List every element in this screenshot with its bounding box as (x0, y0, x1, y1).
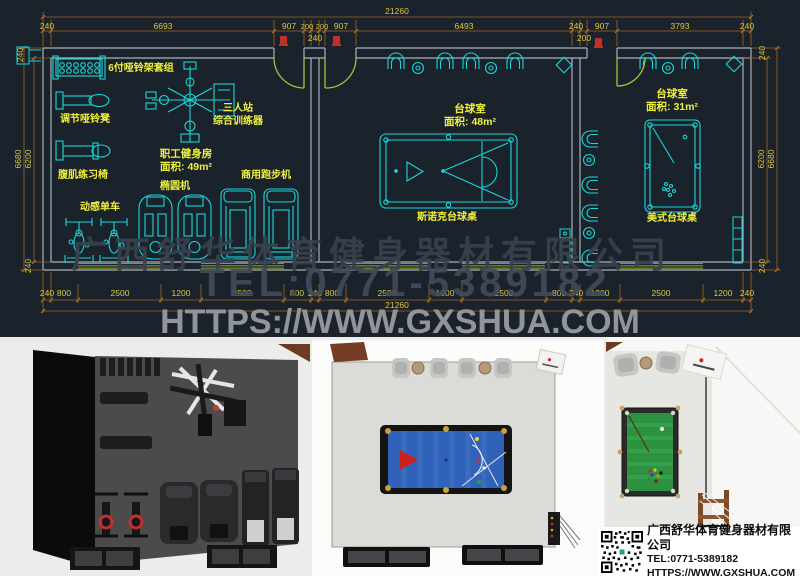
plan-text: 商用跑步机 (241, 168, 291, 181)
plan-text: 2500 (378, 288, 397, 298)
plan-text: 907 (334, 21, 348, 31)
plan-text: 椭圆机 (160, 179, 190, 192)
snooker-table-3d (380, 425, 512, 494)
pool-table-3d (618, 406, 683, 499)
plan-text: 面积: 48m² (444, 115, 496, 128)
plan-text: 1200 (172, 288, 191, 298)
plan-text: 美式台球桌 (647, 211, 697, 224)
plan-text: 240 (757, 46, 767, 60)
plan-text: 800 (290, 288, 304, 298)
floor-plan-drawing: 2126024066939072002009076493240907379324… (0, 0, 800, 345)
wood-door (330, 342, 368, 362)
plan-text: 240 (569, 288, 583, 298)
plan-text: 200 (301, 22, 314, 31)
plan-text: 21260 (385, 6, 409, 16)
plan-text: 6493 (455, 21, 474, 31)
black-wall (33, 350, 95, 568)
info-website: HTTPS://WWW.GXSHUA.COM (647, 567, 800, 576)
plan-text: 240 (569, 21, 583, 31)
plan-text: 动感单车 (80, 200, 120, 213)
qr-code (601, 531, 643, 573)
plan-text: 800 (552, 288, 566, 298)
plan-text: 2500 (111, 288, 130, 298)
plan-text: 2500 (495, 288, 514, 298)
plan-text: 面积: 49m² (160, 160, 212, 173)
plan-text: 腹肌练习椅 (58, 168, 108, 181)
plan-text: 240 (40, 21, 54, 31)
plan-text: 1200 (591, 288, 610, 298)
plan-text: 6付哑铃架套组 (108, 61, 174, 74)
plan-text: 240 (23, 259, 33, 273)
plan-text: 综合训练器 (213, 114, 264, 127)
plan-text: 台球室 (656, 87, 688, 100)
render-snooker-3d (312, 340, 604, 576)
plan-text: 职工健身房 (160, 147, 213, 160)
plan-text: 2500 (233, 288, 252, 298)
plan-text: 3793 (671, 21, 690, 31)
plan-text: 200 (316, 22, 329, 31)
plan-text: 1000 (436, 288, 455, 298)
plan-text: 907 (595, 21, 609, 31)
plan-text: 6200 (756, 149, 766, 168)
plan-text: 200 (577, 33, 591, 43)
plan-text: 240 (308, 288, 322, 298)
plan-text: 907 (282, 21, 296, 31)
plan-text: 6680 (13, 149, 23, 168)
plan-text: 240 (740, 288, 754, 298)
info-phone: TEL:0771-5389182 (647, 553, 800, 566)
screenshot-root: 2126024066939072002009076493240907379324… (0, 0, 800, 576)
plan-text: 240 (15, 48, 25, 62)
info-company-name: 广西舒华体育健身器材有限公司 (647, 523, 800, 553)
plan-text: 240 (40, 288, 54, 298)
plan-text: 6680 (766, 149, 776, 168)
plan-text: 240 (740, 21, 754, 31)
company-info-box: 广西舒华体育健身器材有限公司 TEL:0771-5389182 HTTPS://… (598, 527, 800, 576)
plan-text: 1200 (714, 288, 733, 298)
plan-text: 面积: 31m² (646, 100, 698, 113)
plan-text: 800 (325, 288, 339, 298)
plan-text: 调节哑铃凳 (60, 112, 110, 125)
plan-text: 6200 (23, 149, 33, 168)
plan-text: 240 (757, 259, 767, 273)
plan-text: 三人站 (223, 101, 253, 114)
plan-text: 斯诺克台球桌 (417, 210, 477, 223)
plan-text: 2500 (652, 288, 671, 298)
plan-text: 台球室 (454, 102, 486, 115)
plan-text: 800 (57, 288, 71, 298)
plan-text: 21260 (385, 300, 409, 310)
plan-text: 240 (308, 33, 322, 43)
render-gym-3d (2, 344, 310, 572)
plan-text: 6693 (154, 21, 173, 31)
